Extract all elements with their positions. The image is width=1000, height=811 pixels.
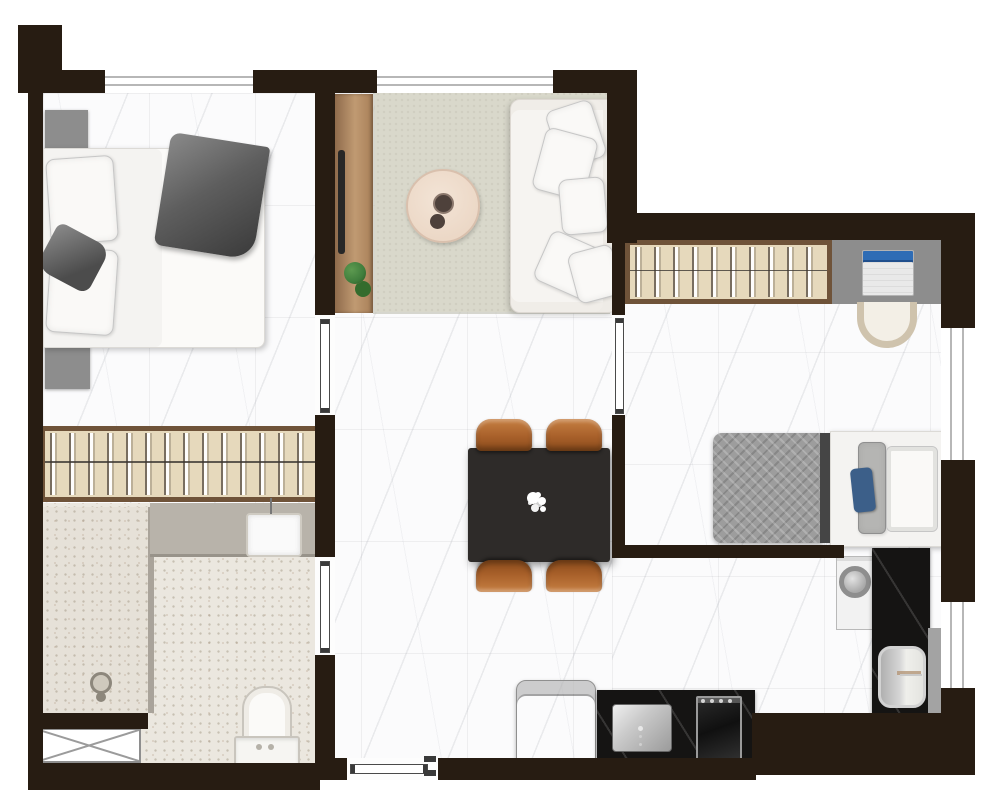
wall-bedroom2-left-lower [612,415,625,547]
interior-door-bedroom2 [615,318,624,414]
wall-left [28,88,43,790]
sofa-pillow [558,176,609,236]
wall-top-a [43,70,105,93]
dining-chair [546,419,602,451]
plant-icon [344,262,366,284]
tv-icon [338,150,345,254]
shower-drain-icon [90,672,112,694]
wall-bedroom-hall-upper [315,93,335,315]
kitchen-faucet-icon [638,726,643,731]
sink-faucet-icon [270,498,272,514]
washer-drum-icon [839,566,871,598]
wall-bottom-right-mass [752,713,975,775]
service-shaft [37,728,141,763]
entry-door [350,764,428,774]
interior-door-master [320,319,330,413]
wall-bottom-center [438,758,756,780]
wall-bedroom2-bottom [612,545,844,558]
toilet-button-icon [256,744,262,750]
wardrobe-rail [630,270,827,272]
cooktop [696,696,742,760]
sink-faucet-icon [900,674,922,676]
wall-bedroom2-left-upper [612,240,625,315]
nightstand [45,345,90,389]
wall-bathroom-right [315,655,335,780]
wardrobe-rail [45,461,315,463]
wall-right-mid [941,460,975,602]
vanity-sink [246,513,302,557]
blue-pillow-icon [850,467,876,513]
wardrobe-master [40,426,320,502]
wall-right-upper [941,240,975,328]
quilt-icon [713,433,823,543]
flower-centerpiece-icon [527,492,539,504]
dining-chair [476,560,532,592]
hanging-clothes-icon [632,247,825,297]
window-living-room [377,70,553,93]
wall-right-block-top [637,213,975,240]
bed-footboard [820,433,830,543]
window-bathroom2 [941,602,975,688]
wall-living-right [607,70,637,243]
gray-blanket-icon [154,132,271,260]
bed-pillow [886,446,938,532]
wall-bottom-left-stub [333,758,347,780]
dining-chair [476,419,532,451]
table-decor-icon [433,193,454,214]
cooktop-knobs-icon [701,699,705,703]
door-panel [928,628,941,720]
wardrobe-bedroom2 [625,240,832,304]
entry-door-hinge-icon [424,756,436,762]
interior-door-bathroom [320,561,330,653]
bathroom2-sink [878,646,926,708]
dining-table [468,448,610,562]
wall-shower-bottom [35,713,148,729]
refrigerator [516,680,596,764]
wall-bathroom-bottom [28,763,320,790]
window-bedroom2 [941,328,975,460]
wall-top-b [253,70,377,93]
floor-plan [0,0,1000,811]
hanging-clothes-icon [47,433,313,495]
window-master-bedroom [105,70,253,93]
laptop-icon [862,250,914,296]
dining-chair [546,560,602,592]
toilet-tank [234,736,300,766]
wall-bedroom-hall-mid [315,415,335,557]
